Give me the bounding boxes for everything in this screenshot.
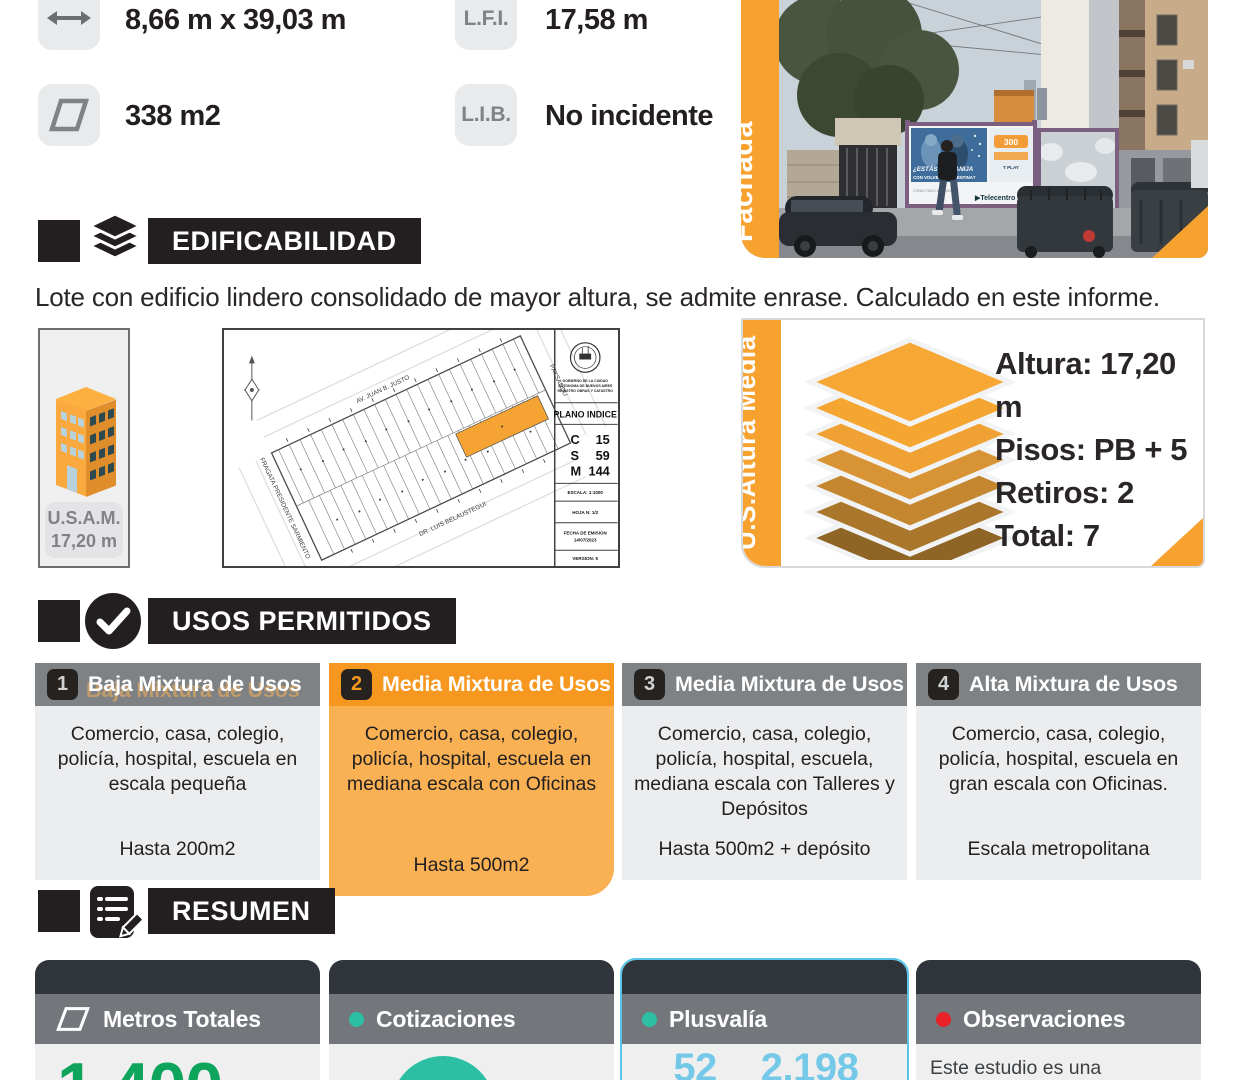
resumen-card-cotizaciones-bar: Cotizaciones bbox=[329, 994, 614, 1044]
area-icon-tile bbox=[38, 84, 100, 146]
dumpster-left bbox=[1017, 186, 1113, 258]
plan-org1: GOBIERNO DE LA CIUDAD bbox=[563, 379, 609, 383]
lfi-value: 17,58 m bbox=[545, 4, 648, 37]
lfi-badge: L.F.I. bbox=[455, 0, 517, 50]
uso-card-1-header: 1 Baja Mixtura de Usos bbox=[35, 663, 320, 706]
resumen-card-metros-title: Metros Totales bbox=[103, 1006, 261, 1033]
plan-fecha2: 14/07/2023 bbox=[574, 537, 597, 542]
uso-card-2-header: 2 Media Mixtura de Usos bbox=[329, 663, 614, 706]
section-square-usos bbox=[38, 600, 80, 642]
resumen-card-plusvalia-title: Plusvalía bbox=[669, 1006, 767, 1033]
plusvalia-uva-value: 2.198 bbox=[761, 1048, 859, 1080]
altura-media-card: Altura: 17,20 m Pisos: PB + 5 Retiros: 2… bbox=[741, 318, 1205, 568]
uso-card-4-title: Alta Mixtura de Usos bbox=[969, 672, 1178, 697]
plan-row-s: S bbox=[570, 448, 579, 463]
plan-hoja: HOJA N: 1/2 bbox=[572, 510, 598, 515]
resumen-card-metros-bar: Metros Totales bbox=[35, 994, 320, 1044]
uso-card-4-footer: Escala metropolitana bbox=[926, 837, 1191, 862]
resumen-card-plusvalia-bar: Plusvalía bbox=[622, 994, 907, 1044]
observaciones-text: Este estudio es una aproximación bbox=[916, 1044, 1201, 1080]
facade-side-bar: Fachada bbox=[741, 0, 779, 258]
width-arrow-icon bbox=[47, 6, 91, 30]
resumen-card-observaciones: Observaciones Este estudio es una aproxi… bbox=[916, 960, 1201, 1080]
street-scene: ¿ESTÁS RE MANIJA CON VOLVER A ARGENTINA?… bbox=[779, 0, 1208, 258]
usam-label-box: U.S.A.M. 17,20 m bbox=[45, 502, 123, 558]
plusvalia-metric-uva: 2.198 x UVA bbox=[761, 1048, 859, 1080]
plusvalia-metros-value: 52 bbox=[671, 1048, 720, 1080]
lib-label: L.I.B. bbox=[461, 103, 511, 127]
metros-totales-value: 1.400 bbox=[35, 1048, 320, 1080]
resumen-card-observaciones-bar: Observaciones bbox=[916, 994, 1201, 1044]
uso-card-2: 2 Media Mixtura de Usos Comercio, casa, … bbox=[329, 663, 614, 896]
plan-index-title: PLANO INDICE bbox=[554, 410, 617, 420]
plan-row-m-val: 144 bbox=[588, 464, 610, 479]
altura-side-bar: U.S.Altura Media bbox=[743, 320, 781, 566]
plan-fecha1: FECHA DE EMISION bbox=[564, 531, 607, 536]
uso-card-4-desc: Comercio, casa, colegio, policía, hospit… bbox=[926, 722, 1191, 797]
altura-line-pisos: Pisos: PB + 5 bbox=[995, 428, 1203, 471]
uso-card-2-desc: Comercio, casa, colegio, policía, hospit… bbox=[339, 722, 604, 797]
plan-row-s-val: 59 bbox=[596, 448, 610, 463]
uso-card-4-number: 4 bbox=[928, 669, 959, 700]
uso-card-1-footer: Hasta 200m2 bbox=[45, 837, 310, 862]
resumen-card-observaciones-title: Observaciones bbox=[963, 1006, 1125, 1033]
facade-label: Fachada bbox=[741, 121, 760, 242]
plan-org2: AUTONOMA DE BUENOS AIRES bbox=[558, 384, 613, 388]
facade-photo: ¿ESTÁS RE MANIJA CON VOLVER A ARGENTINA?… bbox=[741, 0, 1208, 258]
plan-org3: REGISTRO OBRAS Y CATASTRO bbox=[557, 389, 613, 393]
uso-card-3-body: Comercio, casa, colegio, policía, hospit… bbox=[622, 706, 907, 880]
report-page: 8,66 m x 39,03 m 338 m2 L.F.I. 17,58 m L… bbox=[0, 0, 1240, 1080]
resumen-card-cotizaciones-title: Cotizaciones bbox=[376, 1006, 515, 1033]
altura-side-label: U.S.Altura Media bbox=[741, 335, 762, 550]
resumen-card-plusvalia-strip bbox=[622, 960, 907, 994]
uso-card-1: 1 Baja Mixtura de Usos Comercio, casa, c… bbox=[35, 663, 320, 880]
notes-pencil-icon bbox=[84, 882, 144, 942]
lot-area-value: 338 m2 bbox=[125, 100, 220, 133]
altura-line-altura: Altura: 17,20 m bbox=[995, 342, 1203, 428]
resumen-card-plusvalia: Plusvalía 52 metros 2.198 x UVA bbox=[622, 960, 907, 1080]
resumen-card-metros-strip bbox=[35, 960, 320, 994]
uso-card-2-body: Comercio, casa, colegio, policía, hospit… bbox=[329, 706, 614, 896]
area-parallelogram-icon bbox=[49, 98, 89, 132]
lib-badge: L.I.B. bbox=[455, 84, 517, 146]
section-title-resumen: RESUMEN bbox=[148, 888, 335, 934]
uso-card-1-desc: Comercio, casa, colegio, policía, hospit… bbox=[45, 722, 310, 797]
uso-card-2-number: 2 bbox=[341, 669, 372, 700]
building-icon bbox=[53, 385, 119, 505]
resumen-card-metros: Metros Totales 1.400 bbox=[35, 960, 320, 1080]
metros-area-icon bbox=[55, 1006, 91, 1032]
section-square-resumen bbox=[38, 890, 80, 932]
billboard-brand: ▶Telecentro bbox=[974, 195, 1015, 202]
uso-card-4-header: 4 Alta Mixtura de Usos bbox=[916, 663, 1201, 706]
resumen-card-observaciones-strip bbox=[916, 960, 1201, 994]
resumen-card-cotizaciones: Cotizaciones bbox=[329, 960, 614, 1080]
floor-stack-icon bbox=[795, 330, 1025, 560]
cadastral-plan: AV. JUAN B. JUSTO PAYSANDU FRAGATA PRESI… bbox=[222, 328, 620, 568]
plan-escala: ESCALA: 1:1000 bbox=[568, 490, 604, 495]
resumen-card-plusvalia-body: 52 metros 2.198 x UVA bbox=[622, 1044, 907, 1080]
section-title-edificabilidad: EDIFICABILIDAD bbox=[148, 218, 421, 264]
uso-card-4: 4 Alta Mixtura de Usos Comercio, casa, c… bbox=[916, 663, 1201, 880]
check-circle-icon bbox=[84, 592, 142, 650]
resumen-card-cotizaciones-strip bbox=[329, 960, 614, 994]
uso-card-3: 3 Media Mixtura de Usos Comercio, casa, … bbox=[622, 663, 907, 880]
uso-card-3-header: 3 Media Mixtura de Usos bbox=[622, 663, 907, 706]
uso-card-3-footer: Hasta 500m2 + depósito bbox=[632, 837, 897, 862]
billboard-offer: 300 bbox=[1004, 137, 1018, 147]
altura-specs: Altura: 17,20 m Pisos: PB + 5 Retiros: 2… bbox=[995, 342, 1203, 568]
compass-icon bbox=[244, 356, 260, 421]
uso-card-2-title: Media Mixtura de Usos bbox=[382, 672, 611, 697]
uso-card-3-title: Media Mixtura de Usos bbox=[675, 672, 904, 697]
layers-icon bbox=[84, 210, 146, 272]
plan-row-c-val: 15 bbox=[596, 432, 610, 447]
usam-value: 17,20 m bbox=[45, 530, 123, 553]
billboard-tplay: T PLAY bbox=[1003, 165, 1019, 170]
edificabilidad-description: Lote con edificio lindero consolidado de… bbox=[35, 282, 1215, 313]
plusvalia-metric-metros: 52 metros bbox=[671, 1048, 720, 1080]
cotizaciones-dot-icon bbox=[349, 1012, 364, 1027]
uso-card-2-footer: Hasta 500m2 bbox=[339, 853, 604, 878]
plan-row-c: C bbox=[570, 432, 579, 447]
resumen-card-metros-body: 1.400 bbox=[35, 1044, 320, 1080]
section-title-usos: USOS PERMITIDOS bbox=[148, 598, 456, 644]
uso-card-3-desc: Comercio, casa, colegio, policía, hospit… bbox=[632, 722, 897, 822]
billboard-phone: CONECTADO 6380-0000 bbox=[913, 189, 954, 193]
plan-index-panel: GOBIERNO DE LA CIUDAD AUTONOMA DE BUENOS… bbox=[554, 330, 618, 566]
section-square-edificabilidad bbox=[38, 220, 80, 262]
lfi-label: L.F.I. bbox=[464, 7, 509, 31]
lib-value: No incidente bbox=[545, 100, 713, 133]
plan-drawing: AV. JUAN B. JUSTO PAYSANDU FRAGATA PRESI… bbox=[224, 330, 618, 566]
uso-card-4-body: Comercio, casa, colegio, policía, hospit… bbox=[916, 706, 1201, 880]
resumen-card-observaciones-body: Este estudio es una aproximación bbox=[916, 1044, 1201, 1080]
dimensions-icon-tile bbox=[38, 0, 100, 50]
altura-line-retiros: Retiros: 2 bbox=[995, 471, 1203, 514]
uso-card-3-number: 3 bbox=[634, 669, 665, 700]
plusvalia-dot-icon bbox=[642, 1012, 657, 1027]
plan-row-m: M bbox=[570, 464, 581, 479]
plan-version: VERSION: 5 bbox=[572, 556, 598, 561]
white-fragment bbox=[1191, 140, 1208, 188]
lot-dimensions-value: 8,66 m x 39,03 m bbox=[125, 4, 346, 37]
uso-card-1-title: Baja Mixtura de Usos bbox=[88, 672, 301, 697]
usam-label: U.S.A.M. bbox=[45, 507, 123, 530]
uso-card-1-number: 1 bbox=[47, 669, 78, 700]
usam-box: U.S.A.M. 17,20 m bbox=[38, 328, 130, 568]
observaciones-dot-icon bbox=[936, 1012, 951, 1027]
cotizaciones-circle bbox=[391, 1056, 495, 1080]
uso-card-1-body: Comercio, casa, colegio, policía, hospit… bbox=[35, 706, 320, 880]
resumen-card-cotizaciones-body bbox=[329, 1044, 614, 1080]
